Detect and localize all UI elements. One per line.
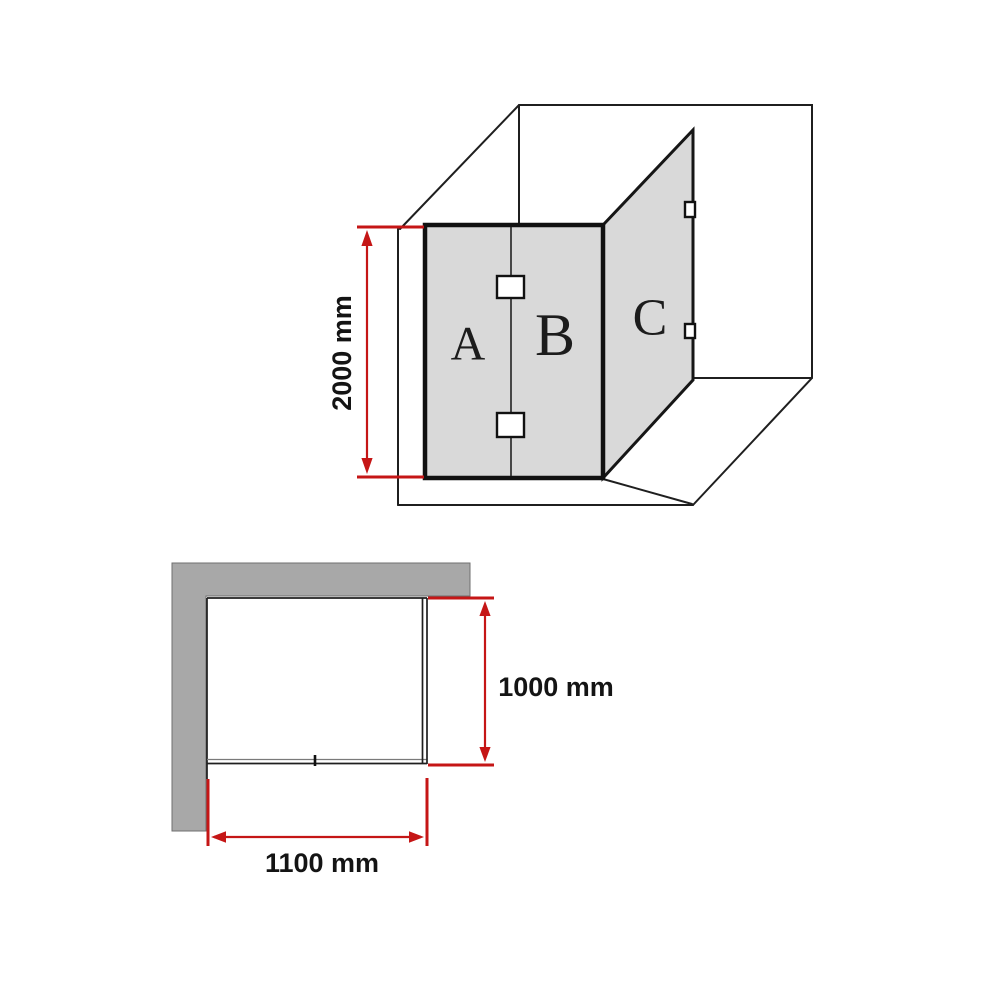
height-dim-label: 2000 mm — [327, 295, 357, 411]
diagram-page: A B C 2000 mm — [0, 0, 1000, 1000]
wall-bracket-top-icon — [685, 202, 695, 217]
panel-c-label: C — [633, 290, 668, 347]
width-dim-label: 1100 mm — [265, 848, 379, 878]
hinge-top-icon — [497, 276, 524, 298]
depth-dim-label: 1000 mm — [498, 672, 614, 702]
panel-b-label: B — [535, 302, 575, 368]
hinge-bottom-icon — [497, 413, 524, 437]
background — [0, 0, 1000, 1000]
wall-bracket-bottom-icon — [685, 324, 695, 338]
shower-screen-diagram: A B C 2000 mm — [0, 0, 1000, 1000]
panel-a-label: A — [451, 318, 486, 371]
